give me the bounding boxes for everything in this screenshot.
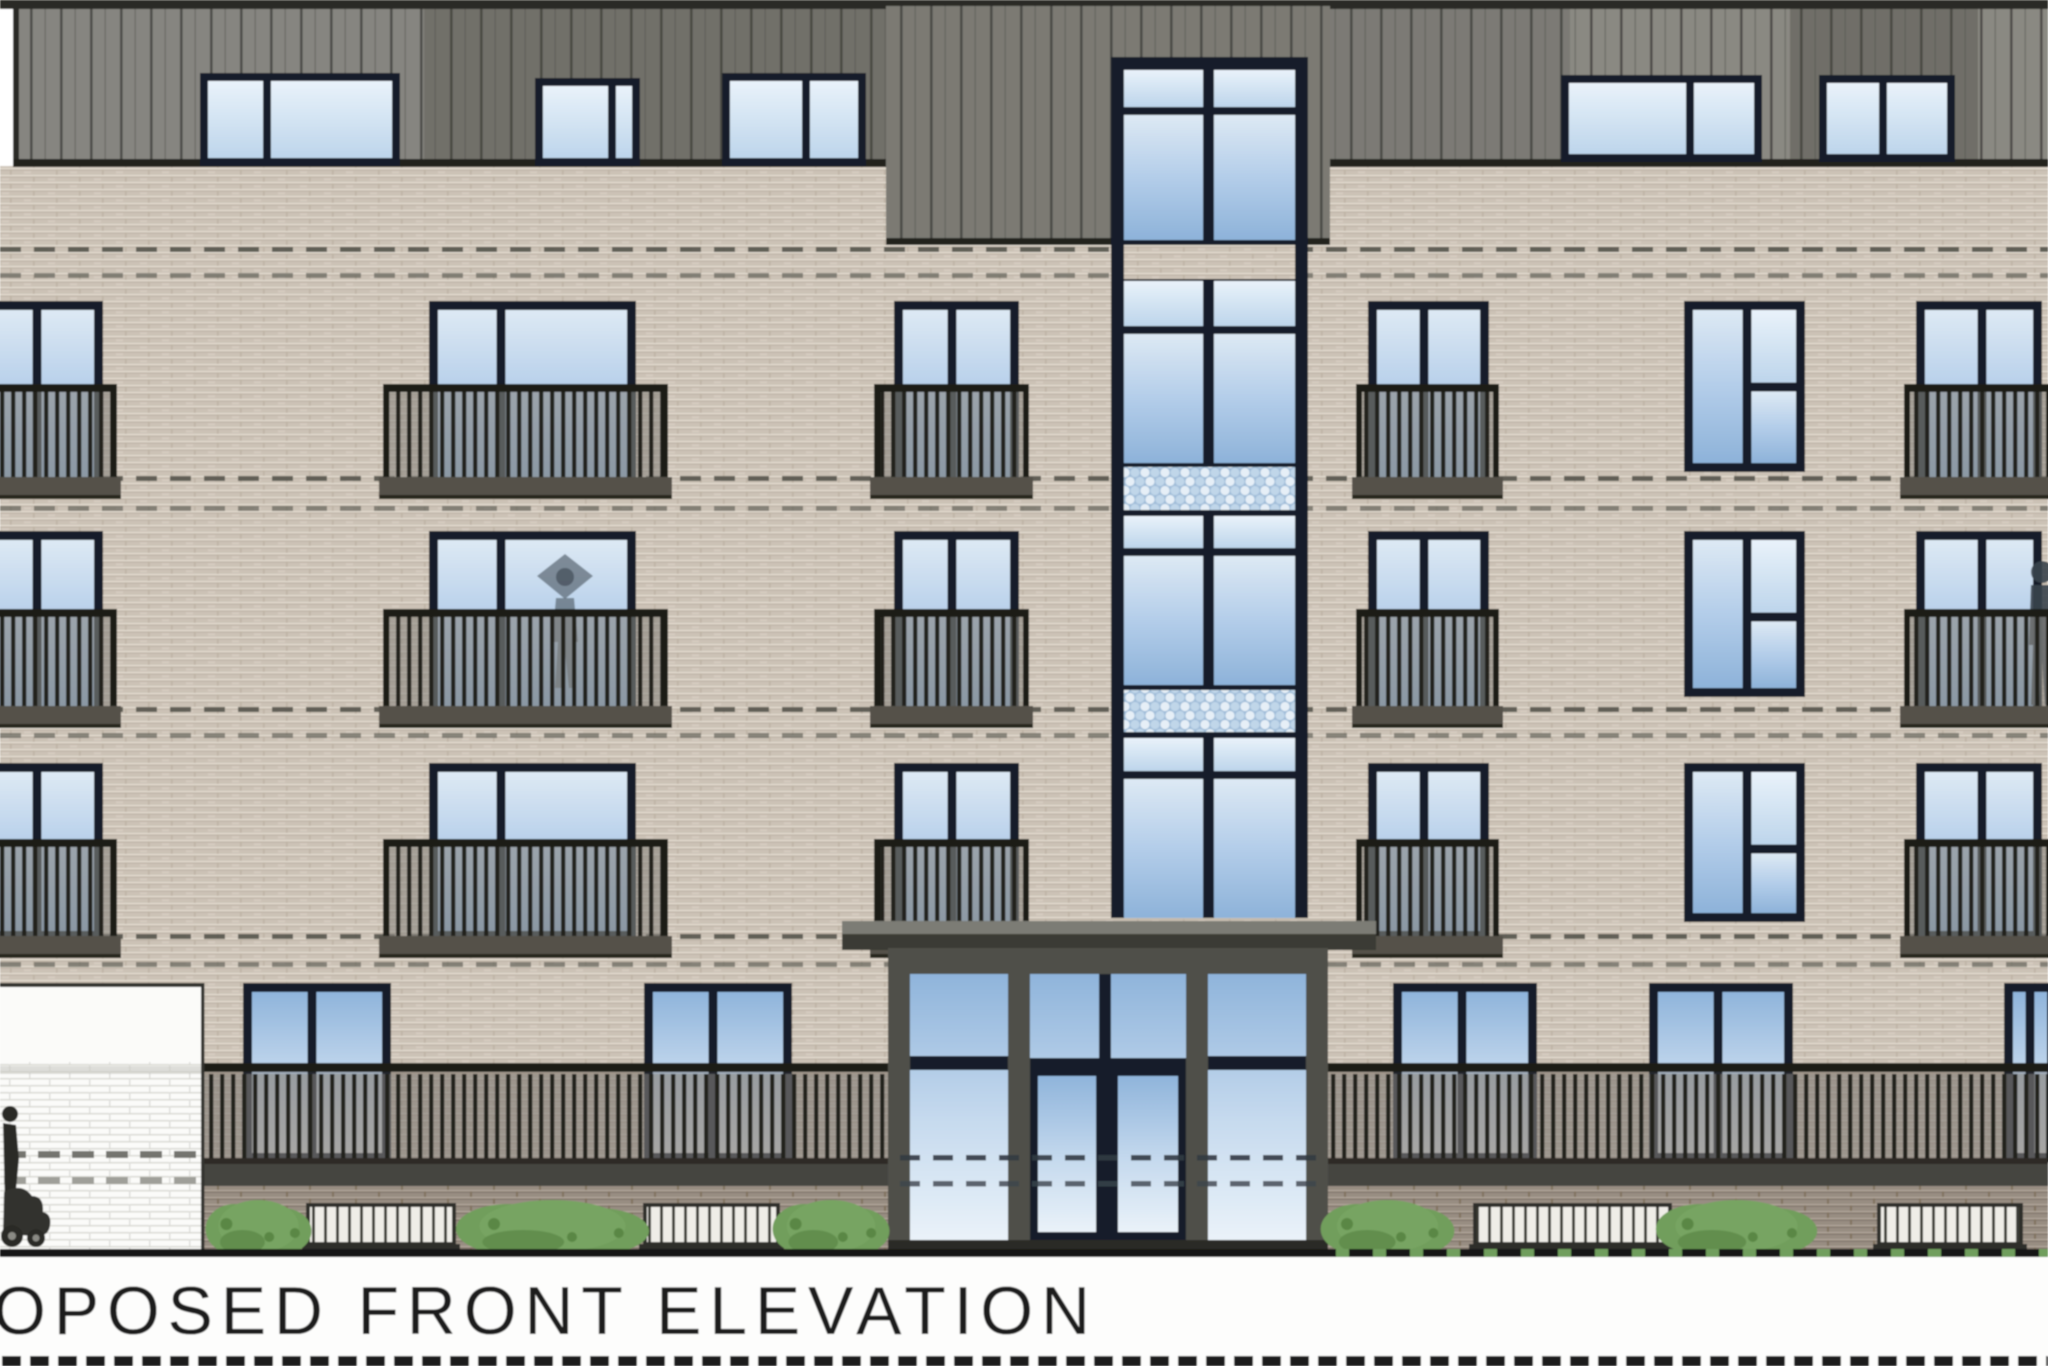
svg-text:OPOSED FRONT ELEVATION: OPOSED FRONT ELEVATION [0, 1273, 1098, 1349]
